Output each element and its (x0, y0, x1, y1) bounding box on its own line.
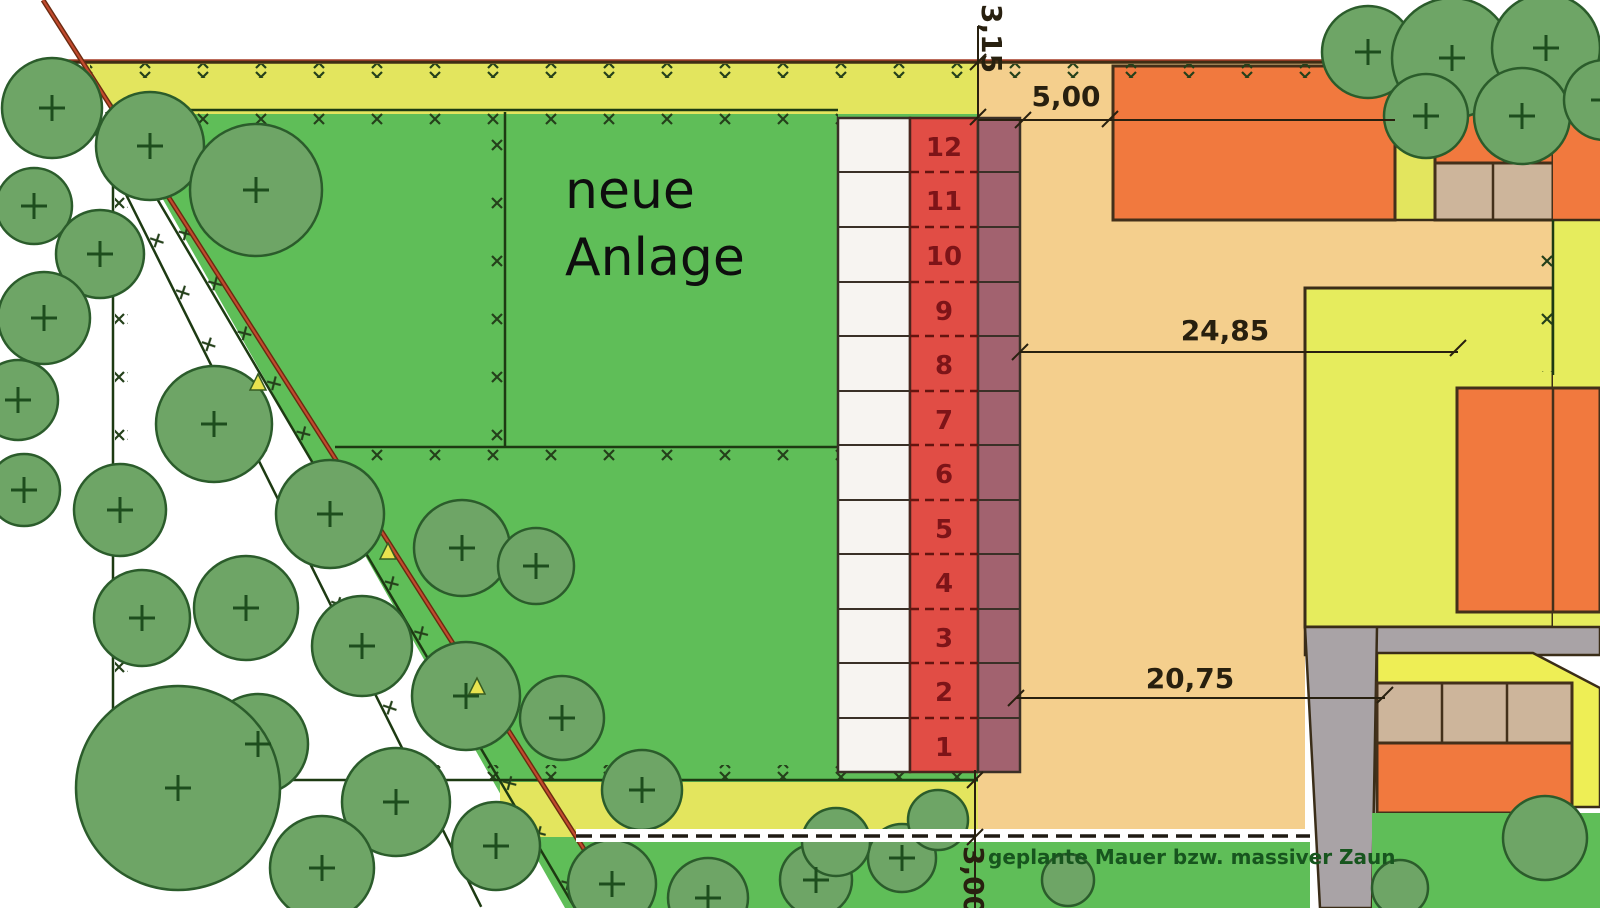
dim-upper-width: 24,85 (1181, 314, 1270, 347)
stall-number: 6 (935, 460, 953, 490)
neighbour-plot-tan-lower (978, 628, 1305, 837)
dim-building-gap: 5,00 (1031, 80, 1100, 113)
stall-number: 8 (935, 351, 953, 381)
stall-number: 7 (935, 406, 953, 436)
stall-number: 1 (935, 733, 953, 763)
building-east (1457, 388, 1600, 612)
stall-number: 4 (935, 569, 953, 599)
area-label-line1: neue (565, 161, 695, 221)
stall-number: 11 (926, 187, 962, 217)
dim-strip-bottom: 3,00 (957, 846, 990, 908)
stall-number: 12 (926, 133, 962, 163)
dim-lower-width: 20,75 (1146, 662, 1235, 695)
parking-stalls: 12 11 10 9 8 7 6 5 4 3 2 1 (838, 118, 1020, 772)
garage-cells-southeast (1377, 683, 1572, 743)
dim-strip-top: 3,15 (975, 4, 1008, 73)
site-plan-drawing: 12 11 10 9 8 7 6 5 4 3 2 1 (0, 0, 1600, 908)
field-west-hatch (115, 112, 128, 778)
planned-wall-note: geplante Mauer bzw. massiver Zaun (988, 845, 1396, 869)
stall-number: 9 (935, 297, 953, 327)
stall-number: 10 (926, 242, 962, 272)
stall-number: 2 (935, 678, 953, 708)
stall-number: 3 (935, 624, 953, 654)
east-hatched-marks (1539, 222, 1552, 372)
stall-number: 5 (935, 515, 953, 545)
field-divider-hatch (491, 114, 504, 447)
field-north-hatch (113, 112, 838, 125)
area-label-line2: Anlage (565, 228, 745, 288)
field-middle-hatch (335, 449, 838, 462)
site-plan: 12 11 10 9 8 7 6 5 4 3 2 1 (0, 0, 1600, 908)
